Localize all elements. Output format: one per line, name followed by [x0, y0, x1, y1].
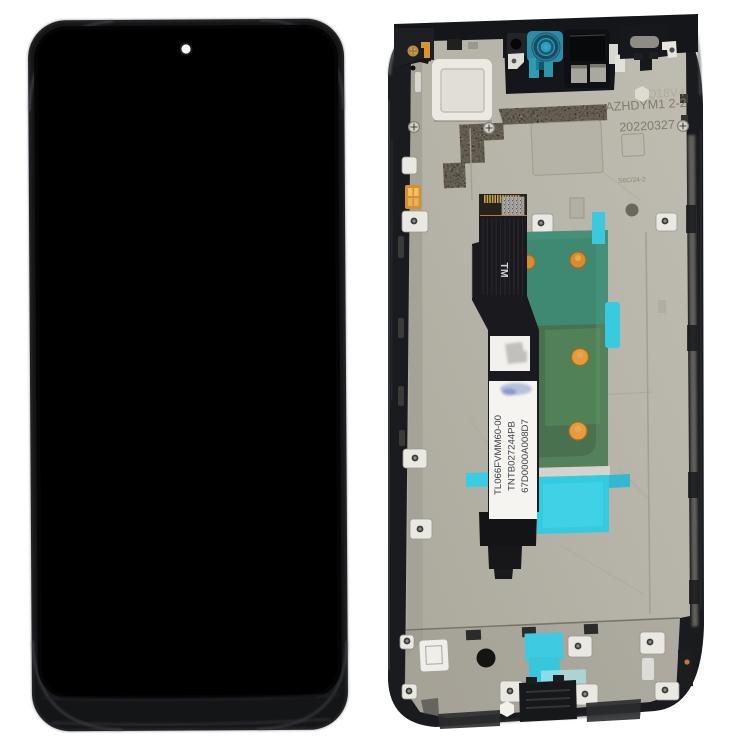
svg-text:20220327: 20220327: [619, 118, 675, 135]
svg-text:TL066FVMM60-00: TL066FVMM60-00: [493, 415, 504, 495]
svg-text:TM: TM: [498, 262, 510, 277]
svg-text:TNTB027244PB: TNTB027244PB: [507, 421, 518, 491]
svg-text:S6C/24-2: S6C/24-2: [618, 176, 646, 184]
svg-text:67D0000A008D7: 67D0000A008D7: [520, 419, 531, 493]
